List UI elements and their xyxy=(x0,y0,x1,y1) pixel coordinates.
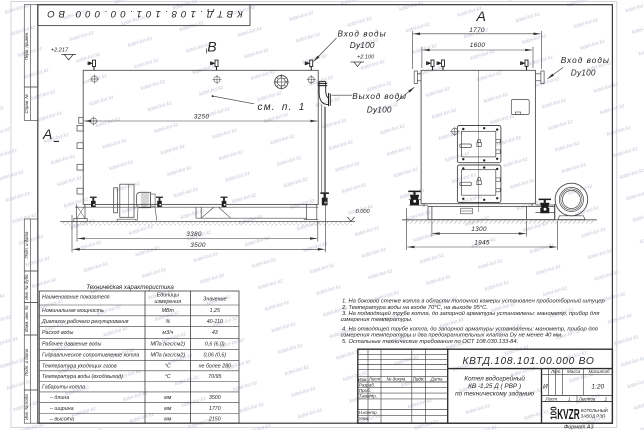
svg-text:Значение: Значение xyxy=(203,296,226,302)
svg-text:измерения температуры.: измерения температуры. xyxy=(341,317,413,323)
svg-text:МПа (кгс/см2): МПа (кгс/см2) xyxy=(150,342,185,348)
svg-text:1,25: 1,25 xyxy=(210,308,220,314)
svg-text:Диапазон рабочего регулировани: Диапазон рабочего регулирования xyxy=(41,319,129,325)
svg-text:0.000: 0.000 xyxy=(356,209,371,215)
svg-text:– высота: – высота xyxy=(49,417,74,423)
svg-text:Габариты котла: Габариты котла xyxy=(42,385,85,391)
svg-text:1770: 1770 xyxy=(209,406,221,412)
svg-text:43: 43 xyxy=(212,330,218,336)
svg-text:KVZR: KVZR xyxy=(557,407,580,423)
svg-text:Лист: Лист xyxy=(368,377,381,382)
svg-text:1. На боковой стенке котла: 1. На боковой стенке котла в области топ… xyxy=(342,298,605,305)
svg-text:Расход воды: Расход воды xyxy=(42,330,73,336)
svg-text:2: 2 xyxy=(604,396,608,401)
svg-text:40-110: 40-110 xyxy=(207,319,223,325)
svg-text:1300: 1300 xyxy=(471,226,487,233)
svg-text:Подп. и дата: Подп. и дата xyxy=(24,231,29,259)
svg-text:5. Остальные технические тр: 5. Остальные технические требования по О… xyxy=(342,339,518,345)
svg-text:мм: мм xyxy=(164,406,172,412)
svg-text:мм: мм xyxy=(164,417,172,423)
svg-text:Dy100: Dy100 xyxy=(571,68,596,77)
svg-text:Проб.: Проб. xyxy=(359,388,371,393)
svg-text:+2.100: +2.100 xyxy=(357,55,375,61)
svg-text:1770: 1770 xyxy=(469,27,485,34)
svg-text:Температура воды (вход/выход): Температура воды (вход/выход) xyxy=(42,374,123,380)
svg-text:КВТД.108.101.00.000 ВО: КВТД.108.101.00.000 ВО xyxy=(43,8,243,19)
svg-text:Единицы: Единицы xyxy=(157,293,179,299)
svg-text:Лит.: Лит. xyxy=(550,369,562,374)
svg-text:Формат А3: Формат А3 xyxy=(564,424,594,430)
svg-text:МВт: МВт xyxy=(162,308,175,314)
svg-text:1:20: 1:20 xyxy=(591,384,604,391)
svg-text:КВТД.108.101.00.000 ВО: КВТД.108.101.00.000 ВО xyxy=(462,356,594,367)
svg-text:Разраб.: Разраб. xyxy=(359,382,375,387)
svg-text:Перв. примен.: Перв. примен. xyxy=(24,32,29,61)
svg-text:Подп. и дата: Подп. и дата xyxy=(24,348,29,376)
svg-text:м3/ч: м3/ч xyxy=(162,330,173,336)
svg-text:Лист: Лист xyxy=(545,396,558,401)
svg-text:измерения: измерения xyxy=(155,299,182,305)
svg-text:Температура уходящих газов: Температура уходящих газов xyxy=(42,363,117,369)
svg-text:70/95: 70/95 xyxy=(208,374,221,380)
svg-text:Т.контр.: Т.контр. xyxy=(359,394,377,399)
svg-text:3250: 3250 xyxy=(194,113,210,120)
svg-text:ЗАВОД РЭП: ЗАВОД РЭП xyxy=(581,413,606,418)
svg-text:КВ -1,25 Д ( РВР ): КВ -1,25 Д ( РВР ) xyxy=(468,383,521,390)
svg-text:2150: 2150 xyxy=(208,417,221,423)
svg-text:Гидравлическое сопротивление к: Гидравлическое сопротивление котла xyxy=(42,353,139,359)
svg-text:А: А xyxy=(42,126,52,142)
svg-text:4. На отводящей трубе котл: 4. На отводящей трубе котла, до запорной… xyxy=(342,326,598,333)
svg-text:Дата: Дата xyxy=(430,377,443,382)
svg-text:А: А xyxy=(476,8,486,24)
svg-text:Подп.: Подп. xyxy=(413,377,425,382)
svg-text:№ докум.: № докум. xyxy=(386,377,406,382)
svg-text:Листов: Листов xyxy=(578,396,596,401)
svg-text:Рабочее давление воды: Рабочее давление воды xyxy=(42,342,101,348)
svg-text:Котел водогрейный: Котел водогрейный xyxy=(464,374,525,382)
svg-text:Инв. № подл.: Инв. № подл. xyxy=(24,393,29,420)
svg-text:°С: °С xyxy=(165,363,171,369)
svg-text:Техническая характеристика: Техническая характеристика xyxy=(86,284,174,291)
svg-text:Инв. № дубл.: Инв. № дубл. xyxy=(24,273,29,299)
svg-text:Вход воды: Вход воды xyxy=(561,56,610,65)
svg-text:по техническому заданию: по техническому заданию xyxy=(455,390,534,398)
svg-text:Н.контр.: Н.контр. xyxy=(359,410,378,415)
svg-text:МПа (кгс/см2): МПа (кгс/см2) xyxy=(150,353,185,359)
svg-text:2. Температура воды на вхо: 2. Температура воды на входе 70°С, на вы… xyxy=(341,305,488,311)
svg-text:Dy100: Dy100 xyxy=(350,41,375,50)
svg-text:мм: мм xyxy=(164,395,172,401)
svg-text:Dy100: Dy100 xyxy=(367,105,392,114)
svg-text:Номинальная мощность: Номинальная мощность xyxy=(42,308,104,314)
svg-text:И: И xyxy=(543,383,548,390)
svg-text:1600: 1600 xyxy=(470,42,486,49)
svg-text:3500: 3500 xyxy=(209,395,221,401)
svg-text:Справ. №: Справ. № xyxy=(24,94,29,114)
svg-text:Утв.: Утв. xyxy=(359,416,369,421)
svg-text:не более 280: не более 280 xyxy=(199,363,231,369)
svg-text:Масса: Масса xyxy=(567,369,581,374)
svg-text:В: В xyxy=(207,38,216,54)
svg-text:1945: 1945 xyxy=(474,240,490,247)
svg-text:Вход воды: Вход воды xyxy=(338,30,387,39)
svg-text:3380: 3380 xyxy=(186,231,202,238)
svg-text:измерения температуры и два: измерения температуры и два предохраните… xyxy=(341,333,563,339)
svg-text:%: % xyxy=(165,319,170,325)
svg-text:КОТЕЛЬНЫЙ: КОТЕЛЬНЫЙ xyxy=(581,408,608,413)
svg-text:0,6 (6,0): 0,6 (6,0) xyxy=(205,342,225,348)
svg-text:см. п. 1: см. п. 1 xyxy=(258,102,306,113)
svg-text:– длина: – длина xyxy=(49,395,69,401)
svg-text:Изм.: Изм. xyxy=(358,377,368,382)
svg-text:Взам. инв. №: Взам. инв. № xyxy=(24,305,29,332)
svg-text:0,06 (0,6): 0,06 (0,6) xyxy=(203,353,226,359)
svg-text:Масштаб: Масштаб xyxy=(589,369,610,374)
svg-text:°С: °С xyxy=(165,374,171,380)
svg-text:– ширина: – ширина xyxy=(49,406,74,412)
svg-text:3500: 3500 xyxy=(190,242,206,249)
svg-text:Наименование показателя: Наименование показателя xyxy=(42,295,110,301)
svg-text:+2.217: +2.217 xyxy=(51,47,69,53)
